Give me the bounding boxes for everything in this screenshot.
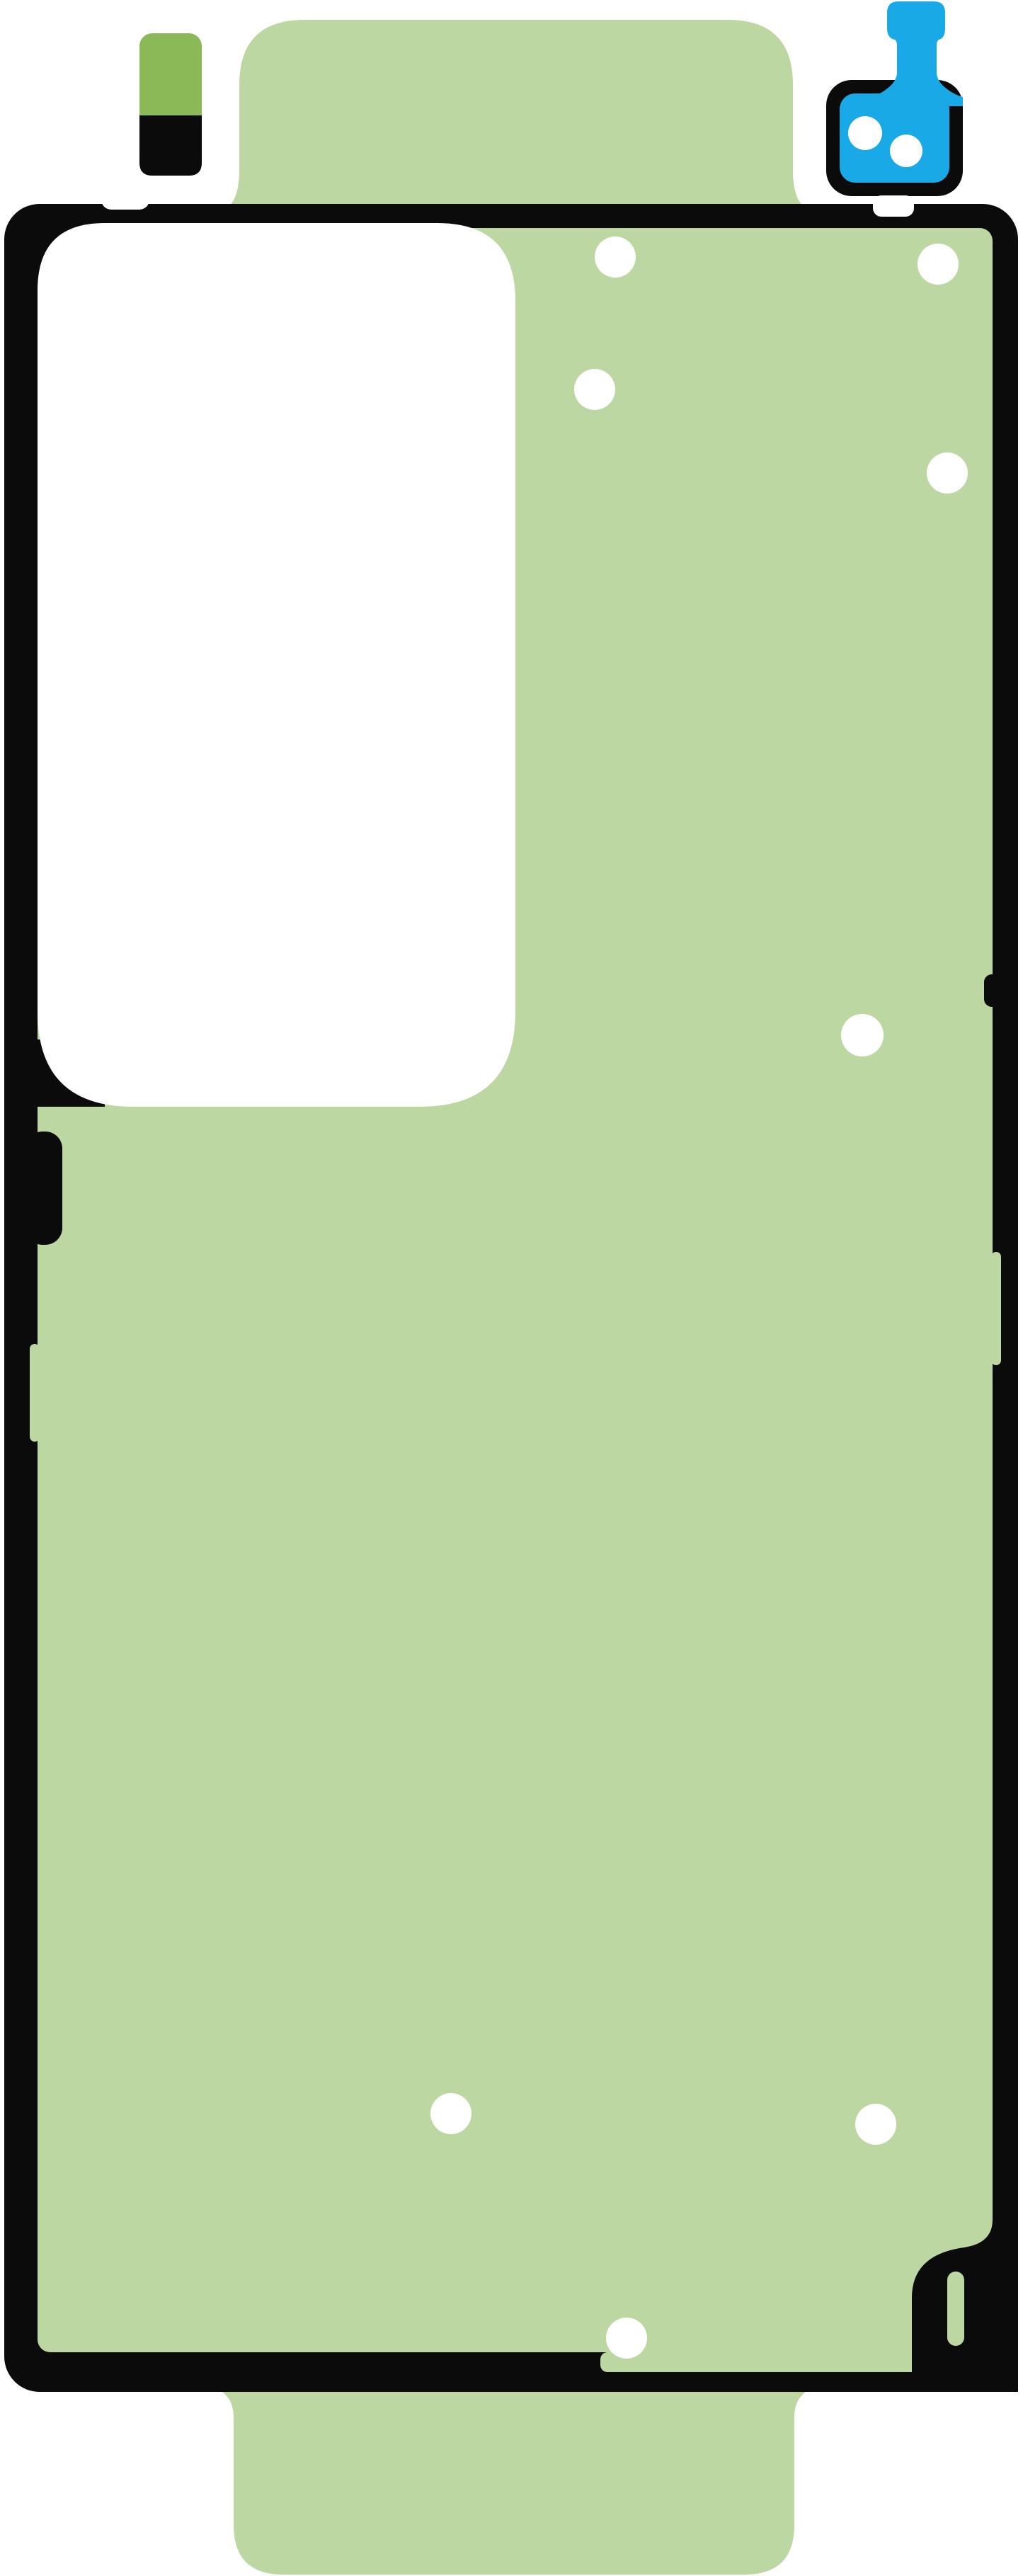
bottom-release-liner-tab bbox=[212, 2386, 816, 2575]
die-cut-hole bbox=[890, 135, 922, 167]
adhesive-sheet-illustration bbox=[0, 0, 1023, 2576]
die-cut-hole bbox=[606, 2318, 647, 2359]
bottom-border-step bbox=[600, 2352, 922, 2372]
side-button-slot bbox=[947, 2272, 964, 2346]
die-cut-hole bbox=[855, 2104, 896, 2145]
die-cut-hole bbox=[430, 2093, 472, 2134]
right-border-bump bbox=[984, 974, 1000, 1007]
left-border-bump bbox=[25, 1132, 62, 1245]
illustration-canvas bbox=[0, 0, 1023, 2576]
top-border-notch-right bbox=[873, 195, 914, 217]
camera-island-cutout bbox=[38, 223, 515, 1107]
die-cut-hole bbox=[918, 244, 959, 285]
die-cut-hole bbox=[574, 369, 615, 410]
left-border-thin-cut bbox=[30, 1344, 40, 1442]
top-release-liner-tab bbox=[217, 20, 816, 220]
small-corner-pull-tab-liner bbox=[139, 115, 202, 176]
die-cut-hole bbox=[848, 116, 882, 150]
die-cut-hole bbox=[927, 452, 968, 494]
right-border-thin-cut bbox=[991, 1252, 1001, 1365]
die-cut-hole bbox=[841, 1014, 884, 1056]
die-cut-hole bbox=[595, 236, 636, 278]
top-border-notch-left bbox=[101, 183, 149, 210]
